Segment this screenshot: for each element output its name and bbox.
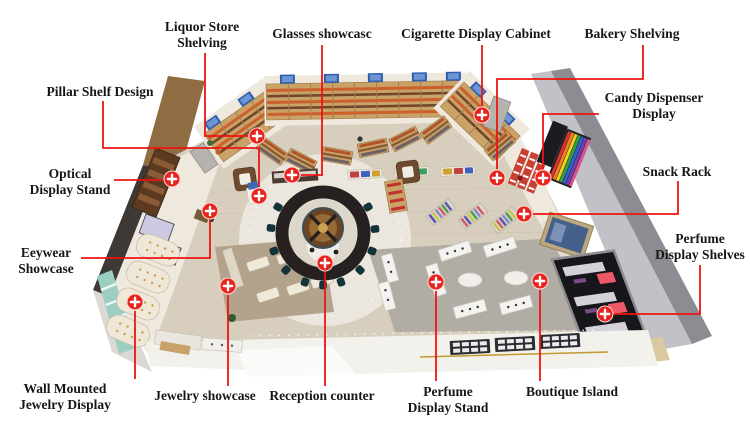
label-wall-mounted-jewelry-display: Wall Mounted Jewelry Display xyxy=(19,381,111,413)
label-text: Jewelry showcase xyxy=(154,388,256,404)
marker-boutique-island xyxy=(532,273,548,289)
label-perfume-display-stand: Perfume Display Stand xyxy=(408,384,489,416)
plant xyxy=(207,140,213,146)
marker-reception-counter xyxy=(317,255,333,271)
label-jewelry-showcase: Jewelry showcase xyxy=(154,388,256,404)
label-text: Wall Mounted xyxy=(19,381,111,397)
label-pillar-shelf-design: Pillar Shelf Design xyxy=(46,84,153,100)
marker-glasses-showcase xyxy=(284,167,300,183)
label-text: Perfume xyxy=(655,231,745,247)
label-eyewear-showcase: Eeywear Showcase xyxy=(18,245,74,277)
annotated-store-layout-figure: Liquor Store Shelving Glasses showcasc C… xyxy=(0,0,750,427)
label-text: Cigarette Display Cabinet xyxy=(401,26,551,42)
boutique-island-counter xyxy=(504,271,528,285)
label-text: Display Stand xyxy=(30,182,111,198)
marker-candy-dispenser-display xyxy=(535,170,551,186)
marker-cigarette-display-cabinet xyxy=(474,107,490,123)
label-text: Glasses showcasc xyxy=(272,26,371,42)
label-cigarette-display-cabinet: Cigarette Display Cabinet xyxy=(401,26,551,42)
dome-sculpture xyxy=(303,208,343,248)
label-text: Liquor Store xyxy=(165,19,239,35)
marker-wall-mounted-jewelry-display xyxy=(127,294,143,310)
marker-bakery-shelving xyxy=(489,170,505,186)
label-boutique-island: Boutique Island xyxy=(526,384,618,400)
label-optical-display-stand: Optical Display Stand xyxy=(30,166,111,198)
wall-shelving-center xyxy=(264,72,467,127)
marker-perfume-display-stand xyxy=(428,274,444,290)
marker-pillar-shelf-design xyxy=(251,188,267,204)
label-text: Optical xyxy=(30,166,111,182)
store-render xyxy=(0,0,750,427)
label-bakery-shelving: Bakery Shelving xyxy=(585,26,680,42)
label-perfume-display-shelves: Perfume Display Shelves xyxy=(655,231,745,263)
label-text: Eeywear xyxy=(18,245,74,261)
label-reception-counter: Reception counter xyxy=(269,388,374,404)
marker-liquor-store-shelving xyxy=(249,128,265,144)
label-text: Display Shelves xyxy=(655,247,745,263)
label-text: Perfume xyxy=(408,384,489,400)
label-text: Snack Rack xyxy=(643,164,712,180)
label-text: Pillar Shelf Design xyxy=(46,84,153,100)
marker-optical-display-stand xyxy=(164,171,180,187)
label-text: Display Stand xyxy=(408,400,489,416)
label-snack-rack: Snack Rack xyxy=(643,164,712,180)
plant xyxy=(228,314,236,322)
marker-snack-rack xyxy=(516,206,532,222)
label-text: Display xyxy=(605,106,704,122)
label-text: Bakery Shelving xyxy=(585,26,680,42)
label-text: Candy Dispenser xyxy=(605,90,704,106)
label-text: Showcase xyxy=(18,261,74,277)
label-text: Reception counter xyxy=(269,388,374,404)
marker-jewelry-showcase xyxy=(220,278,236,294)
boutique-island-counter xyxy=(458,273,482,287)
label-text: Shelving xyxy=(165,35,239,51)
label-text: Jewelry Display xyxy=(19,397,111,413)
label-glasses-showcase: Glasses showcasc xyxy=(272,26,371,42)
label-liquor-store-shelving: Liquor Store Shelving xyxy=(165,19,239,51)
label-candy-dispenser-display: Candy Dispenser Display xyxy=(605,90,704,122)
label-text: Boutique Island xyxy=(526,384,618,400)
marker-eyewear-showcase xyxy=(202,203,218,219)
marker-perfume-display-shelves xyxy=(597,306,613,322)
